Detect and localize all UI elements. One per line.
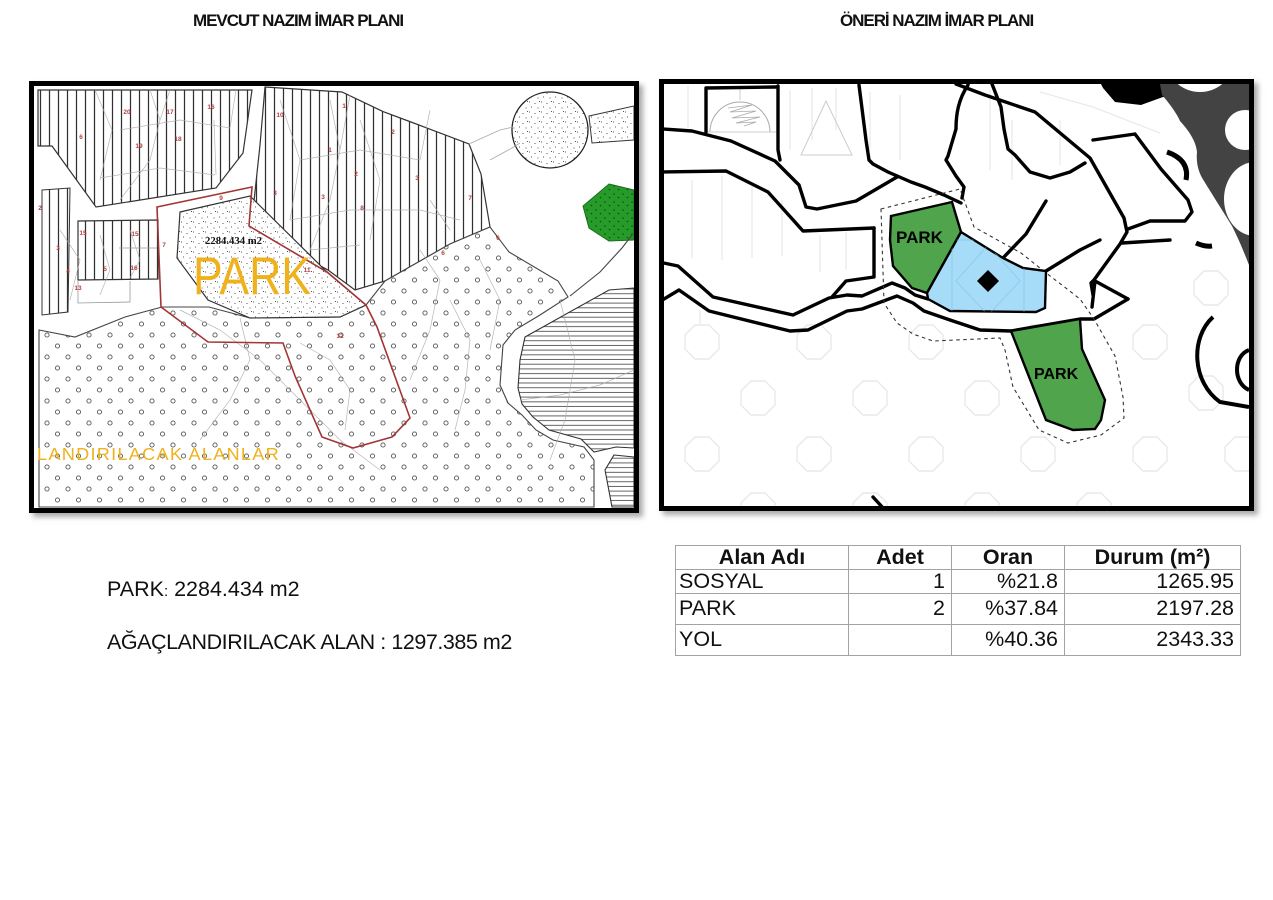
svg-text:13: 13 <box>74 285 82 292</box>
svg-text:15: 15 <box>131 231 139 238</box>
svg-text:2: 2 <box>38 205 42 212</box>
svg-text:2: 2 <box>354 171 358 178</box>
svg-text:3: 3 <box>415 175 419 182</box>
svg-text:4: 4 <box>66 268 70 275</box>
svg-text:5: 5 <box>103 266 107 273</box>
svg-text:PARK: PARK <box>896 228 944 247</box>
svg-text:16: 16 <box>130 265 138 272</box>
svg-text:LANDIRILACAK ALANLAR: LANDIRILACAK ALANLAR <box>37 444 280 464</box>
svg-text:17: 17 <box>166 109 174 116</box>
svg-text:7: 7 <box>162 242 166 249</box>
svg-text:3: 3 <box>273 190 277 197</box>
svg-text:7: 7 <box>468 195 472 202</box>
svg-text:20: 20 <box>123 109 131 116</box>
svg-text:9: 9 <box>219 195 223 202</box>
svg-text:18: 18 <box>174 136 182 143</box>
svg-text:1: 1 <box>328 147 332 154</box>
svg-text:1: 1 <box>342 103 346 110</box>
svg-text:6: 6 <box>79 134 83 141</box>
svg-text:2284.434 m2: 2284.434 m2 <box>205 236 262 247</box>
svg-text:3: 3 <box>321 194 325 201</box>
svg-text:2: 2 <box>391 129 395 136</box>
svg-text:15: 15 <box>79 230 87 237</box>
svg-text:6: 6 <box>496 235 500 242</box>
svg-text:12: 12 <box>336 333 344 340</box>
svg-text:8: 8 <box>360 205 364 212</box>
svg-text:16: 16 <box>207 104 215 111</box>
svg-text:6: 6 <box>441 250 445 257</box>
svg-text:3: 3 <box>56 245 60 252</box>
svg-text:10: 10 <box>276 112 284 119</box>
svg-text:19: 19 <box>135 143 143 150</box>
svg-text:PARK: PARK <box>193 247 311 305</box>
svg-text:PARK: PARK <box>1034 366 1079 383</box>
